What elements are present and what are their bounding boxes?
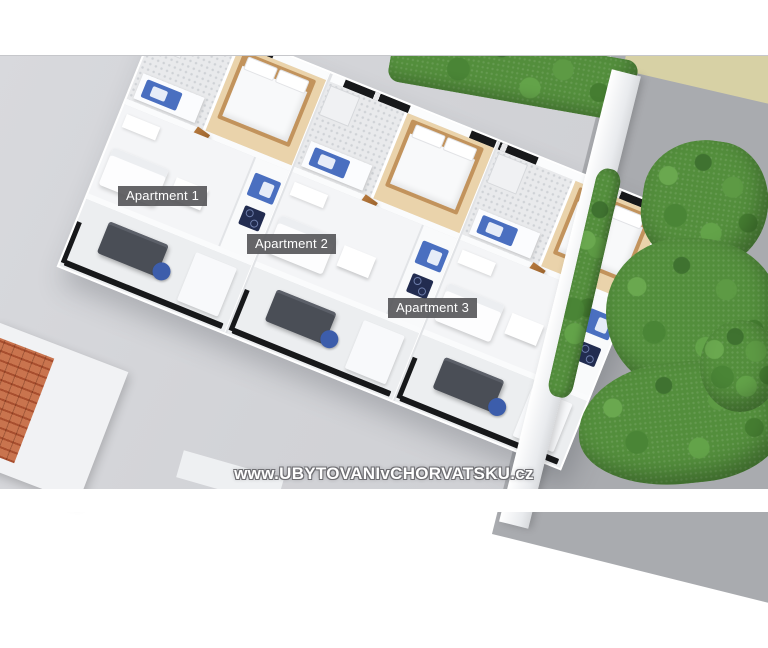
coffee-table <box>336 245 376 278</box>
shower <box>486 153 528 195</box>
credenza <box>457 250 496 276</box>
burner <box>245 208 255 218</box>
terrace-bench <box>177 252 237 317</box>
apartment-1-label: Apartment 1 <box>118 186 207 206</box>
burner <box>417 286 427 296</box>
apartment-2-label: Apartment 2 <box>247 234 336 254</box>
cooktop <box>406 273 434 300</box>
shower <box>319 85 361 127</box>
credenza <box>290 182 329 208</box>
top-white-band <box>0 0 768 56</box>
bottom-white-band <box>0 489 768 512</box>
apartment-3-label: Apartment 3 <box>388 298 477 318</box>
coffee-table <box>504 313 544 346</box>
website-watermark: www.UBYTOVANIvCHORVATSKU.cz <box>0 464 768 484</box>
terracotta-roof-tiles <box>0 336 54 463</box>
cooktop <box>238 205 266 232</box>
credenza <box>122 114 161 140</box>
terrace-bench <box>345 320 405 385</box>
burner <box>585 354 595 364</box>
burner <box>249 218 259 228</box>
burner <box>412 276 422 286</box>
